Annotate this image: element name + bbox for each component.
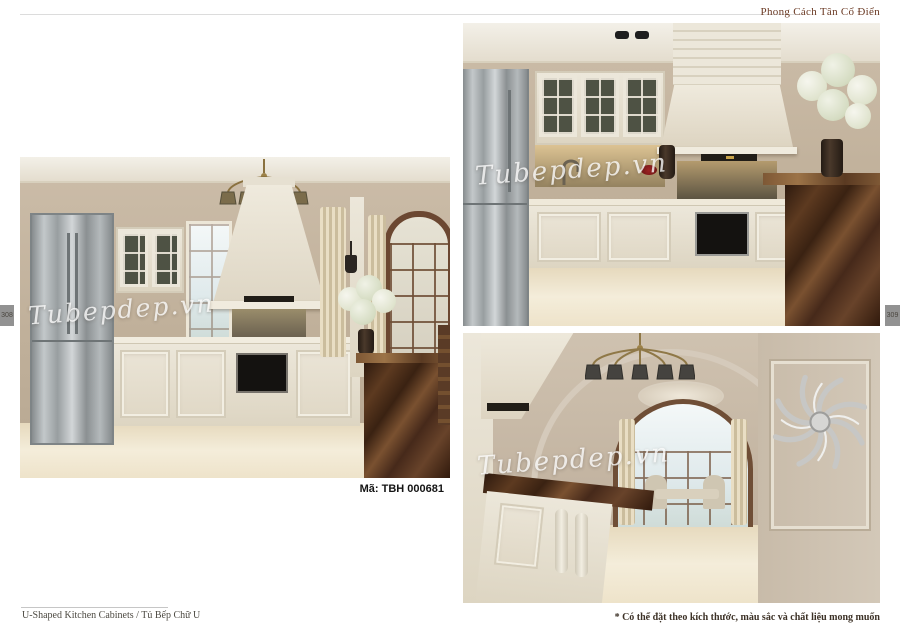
flower-vase xyxy=(821,139,843,177)
curtain xyxy=(619,419,635,525)
cabinet-drawer xyxy=(537,212,601,262)
glass-cabinet-door xyxy=(623,75,661,137)
glass-cabinet-door xyxy=(152,231,180,287)
page-header-title: Phong Cách Tân Cổ Điển xyxy=(761,6,880,18)
flower-bouquet xyxy=(336,273,398,337)
marble-counter xyxy=(785,185,880,326)
cabinet-drawer xyxy=(607,212,671,262)
fridge-door-split xyxy=(463,203,527,205)
countertop xyxy=(529,199,799,206)
kitchen-photo-bottom-right: Tubepdep.vn xyxy=(463,333,880,603)
wooden-chair xyxy=(438,325,450,425)
flower-bouquet xyxy=(793,49,880,145)
footer-divider xyxy=(21,607,168,608)
glass-cabinet-door xyxy=(539,75,577,137)
cabinet-door xyxy=(296,350,352,418)
header-divider xyxy=(20,14,802,15)
hood-mantle xyxy=(208,301,330,309)
flower-vase xyxy=(358,329,374,355)
curtain xyxy=(731,419,747,525)
backsplash xyxy=(232,309,306,337)
hood-light-bar xyxy=(701,154,757,161)
product-code-caption: Mã: TBH 000681 xyxy=(20,483,444,495)
page-number-tab-left: 308 xyxy=(0,305,14,326)
ceiling-spotlight xyxy=(615,31,629,39)
cabinet-door xyxy=(176,350,226,418)
kitchen-photo-top-right: Tubepdep.vn xyxy=(463,23,880,326)
hood-light-bar xyxy=(487,403,529,411)
refrigerator xyxy=(463,69,529,326)
hood-mantle xyxy=(657,147,797,154)
cabinet-door xyxy=(494,503,544,569)
pendant-lantern xyxy=(345,255,357,273)
swirl-mirror xyxy=(767,369,873,475)
hood-chimney xyxy=(673,23,781,85)
marble-counter-surface xyxy=(356,353,450,363)
glass-cabinet-door xyxy=(581,75,619,137)
ceiling-spotlight xyxy=(635,31,649,39)
hood-light-bar xyxy=(244,296,294,302)
cabinet-door xyxy=(120,350,170,418)
fridge-door-split xyxy=(32,340,112,342)
range-hood xyxy=(661,85,793,147)
built-in-oven xyxy=(695,212,749,256)
baluster-column xyxy=(575,513,588,577)
hood-light-glow xyxy=(726,156,734,159)
pendant-cord xyxy=(350,241,352,255)
backsplash xyxy=(677,161,777,201)
kitchen-photo-main: Tubepdep.vn xyxy=(20,157,450,478)
footer-category-label: U-Shaped Kitchen Cabinets / Tủ Bếp Chữ U xyxy=(22,610,200,621)
chandelier-icon xyxy=(585,333,695,383)
footer-customization-note: * Có thể đặt theo kích thước, màu sắc và… xyxy=(615,612,880,623)
page-number-tab-right: 309 xyxy=(885,305,900,326)
dining-table xyxy=(655,489,719,499)
built-in-oven xyxy=(236,353,288,393)
catalog-page: Phong Cách Tân Cổ Điển 308 309 xyxy=(0,0,900,636)
glass-cabinet-door xyxy=(120,231,148,287)
baluster-column xyxy=(555,509,568,573)
